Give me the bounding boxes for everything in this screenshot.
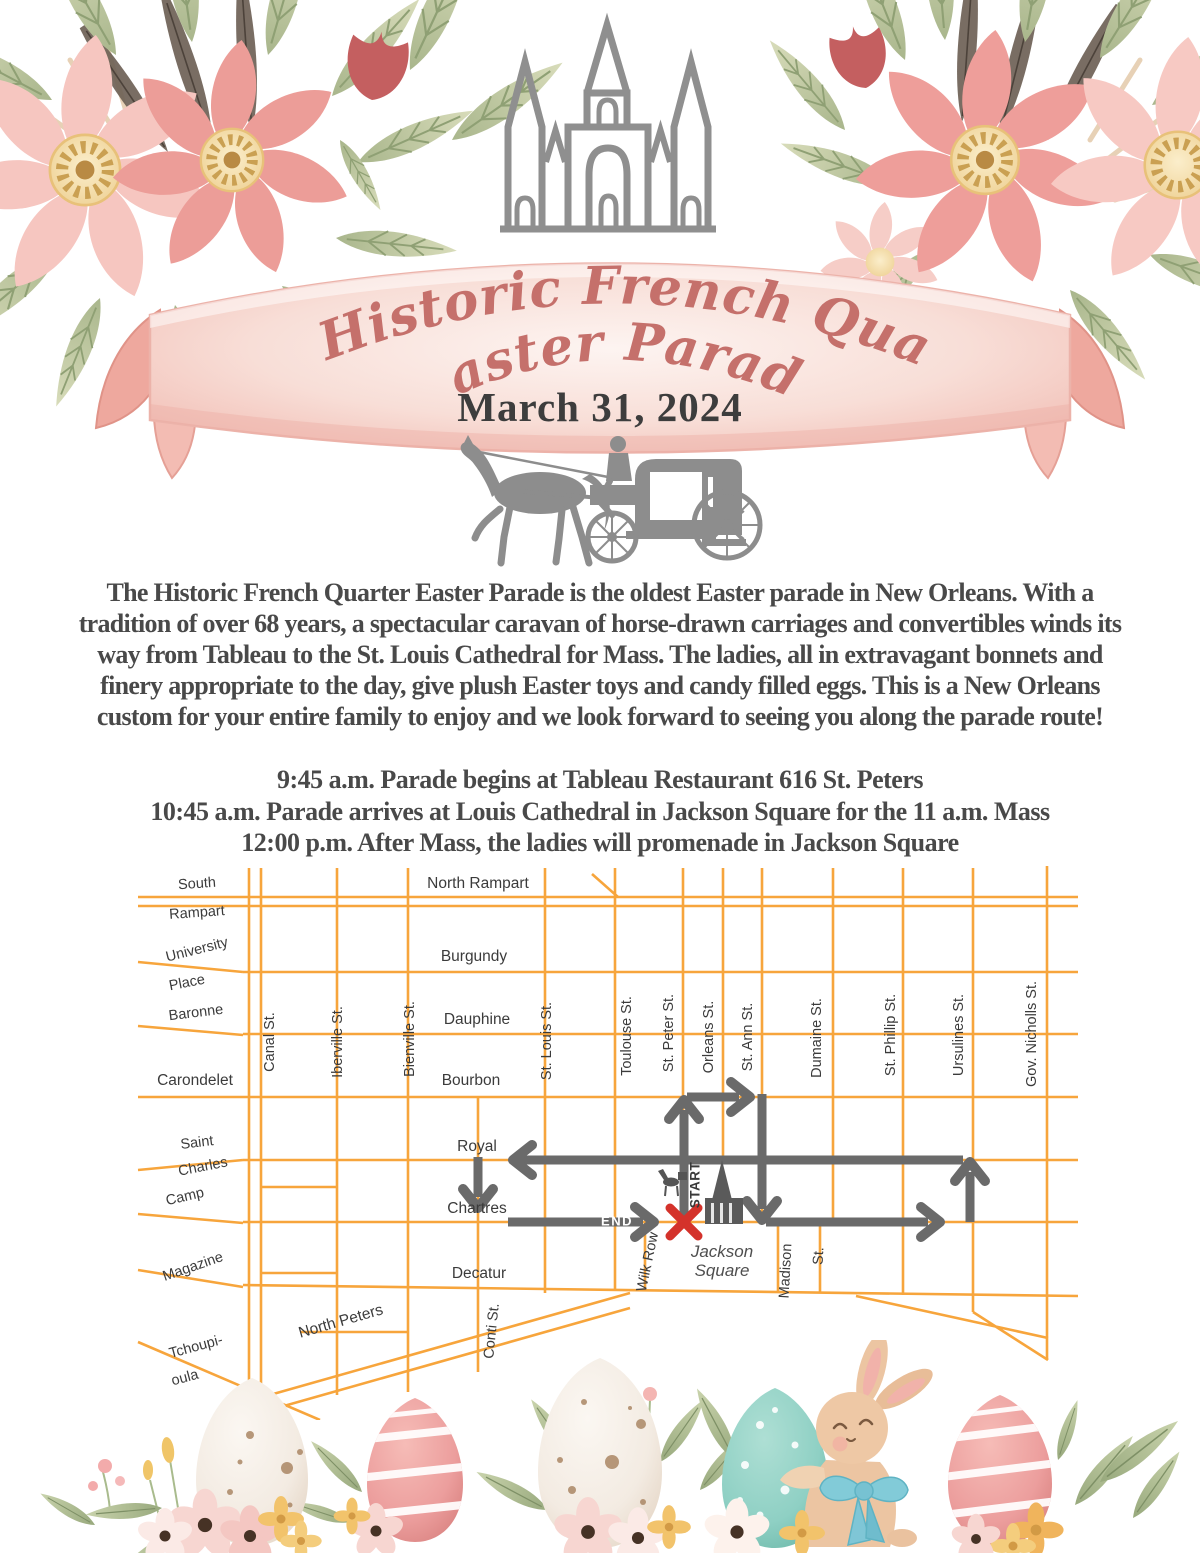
street-label-camp: Camp xyxy=(164,1185,205,1209)
street-label-wilk-row: Wilk Row xyxy=(634,1231,662,1293)
street-label-north-rampart: North Rampart xyxy=(427,875,529,893)
street-label-magazine: Magazine xyxy=(161,1249,226,1285)
street-label-charles: Charles xyxy=(177,1154,229,1179)
street-label-st-phillip: St. Phillip St. xyxy=(883,994,899,1076)
street-label-st-louis: St. Louis St. xyxy=(539,1002,555,1080)
street-label-baronne: Baronne xyxy=(168,1002,224,1025)
street-label-north-peters: North Peters xyxy=(297,1301,386,1342)
street-label-iberville: Iberville St. xyxy=(330,1006,346,1078)
jackson-square-label-2: Square xyxy=(695,1261,750,1281)
street-label-place: Place xyxy=(168,972,207,995)
street-label-rampart: Rampart xyxy=(169,903,226,923)
street-label-madison: Madison xyxy=(777,1243,796,1299)
street-label-st-ann: St. Ann St. xyxy=(740,1003,756,1072)
map-labels: North Rampart Burgundy Dauphine Bourbon … xyxy=(0,0,1200,1553)
street-label-carondelet: Carondelet xyxy=(157,1072,233,1090)
route-start-label: START xyxy=(688,1162,703,1209)
street-label-gov-nicholls: Gov. Nicholls St. xyxy=(1024,981,1040,1087)
street-label-burgundy: Burgundy xyxy=(441,948,507,966)
street-label-bienville: Bienville St. xyxy=(402,1001,418,1077)
street-label-south: South xyxy=(178,875,217,894)
street-label-dauphine: Dauphine xyxy=(444,1011,510,1029)
street-label-chartres: Chartres xyxy=(447,1200,506,1218)
street-label-madison-st: St. xyxy=(811,1247,828,1266)
jackson-square-label-1: Jackson xyxy=(691,1242,753,1262)
route-end-label: END xyxy=(601,1214,633,1229)
street-label-royal: Royal xyxy=(457,1138,497,1156)
street-label-st-peter: St. Peter St. xyxy=(661,994,677,1072)
street-label-toulouse: Toulouse St. xyxy=(619,996,635,1076)
bottom-easter-decoration xyxy=(0,1340,1200,1553)
street-label-decatur: Decatur xyxy=(452,1265,506,1283)
street-label-saint: Saint xyxy=(180,1133,215,1153)
street-label-university: University xyxy=(164,935,230,966)
street-label-bourbon: Bourbon xyxy=(442,1072,501,1090)
street-label-canal: Canal St. xyxy=(262,1012,278,1072)
street-label-dumaine: Dumaine St. xyxy=(809,998,825,1078)
street-label-ursulines: Ursulines St. xyxy=(951,994,967,1076)
street-label-orleans: Orleans St. xyxy=(701,1001,717,1074)
easter-parade-flyer: The Historic French Quarter Easter Parad… xyxy=(0,0,1200,1553)
